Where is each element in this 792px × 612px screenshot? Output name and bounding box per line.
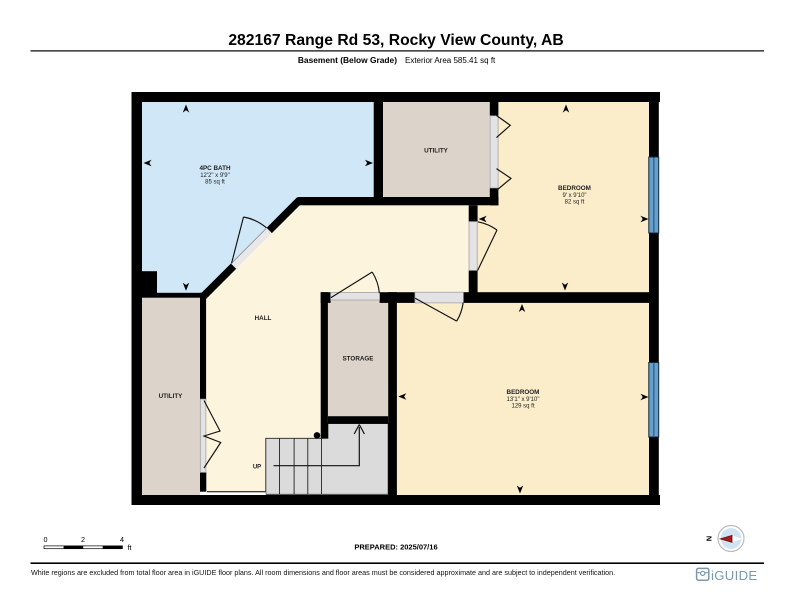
svg-text:UP: UP <box>253 465 261 471</box>
svg-text:UTILITY: UTILITY <box>424 148 449 155</box>
svg-text:12'2" x 9'9": 12'2" x 9'9" <box>200 173 230 179</box>
svg-text:STORAGE: STORAGE <box>342 356 373 363</box>
svg-text:85 sq ft: 85 sq ft <box>205 180 225 186</box>
svg-text:13'1" x 9'10": 13'1" x 9'10" <box>507 397 540 403</box>
svg-text:BEDROOM: BEDROOM <box>558 185 591 192</box>
svg-text:4: 4 <box>120 535 124 544</box>
svg-text:HALL: HALL <box>255 315 272 322</box>
svg-text:82 sq ft: 82 sq ft <box>565 199 585 205</box>
svg-text:2: 2 <box>81 535 85 544</box>
svg-text:UTILITY: UTILITY <box>159 393 184 400</box>
svg-text:ft: ft <box>128 543 132 552</box>
svg-text:White regions are excluded fro: White regions are excluded from total fl… <box>31 568 615 577</box>
svg-text:iGUIDE: iGUIDE <box>711 568 758 583</box>
svg-text:129 sq ft: 129 sq ft <box>511 404 534 410</box>
svg-text:Exterior Area 585.41 sq ft: Exterior Area 585.41 sq ft <box>405 56 496 65</box>
svg-text:282167 Range Rd 53, Rocky View: 282167 Range Rd 53, Rocky View County, A… <box>228 32 563 49</box>
svg-text:Basement (Below Grade): Basement (Below Grade) <box>298 55 397 65</box>
svg-text:0: 0 <box>44 535 48 544</box>
svg-text:PREPARED: 2025/07/16: PREPARED: 2025/07/16 <box>354 542 437 551</box>
svg-text:N: N <box>705 536 714 541</box>
svg-text:BEDROOM: BEDROOM <box>507 389 540 396</box>
svg-text:9' x 9'10": 9' x 9'10" <box>562 193 586 199</box>
svg-text:4PC BATH: 4PC BATH <box>199 165 230 172</box>
